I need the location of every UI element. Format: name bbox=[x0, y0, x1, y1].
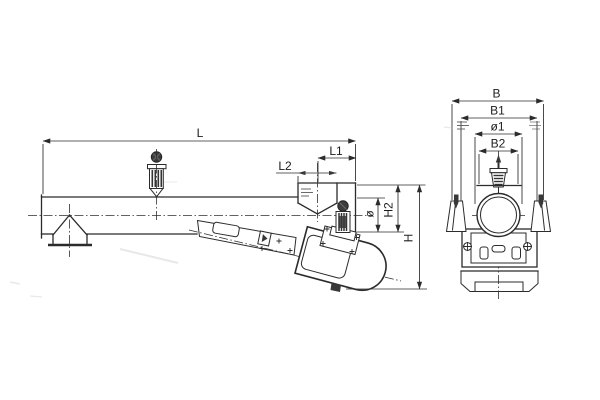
dim-label-l: L bbox=[197, 126, 204, 140]
end-suspension-hanger bbox=[490, 155, 507, 195]
base bbox=[461, 271, 538, 292]
dim-label-phi: ø bbox=[363, 210, 377, 218]
dim-label-phi1: ø1 bbox=[490, 120, 504, 134]
suspension-hanger bbox=[148, 149, 178, 221]
dim-label-l2: L2 bbox=[278, 159, 292, 173]
dim-label-b2: B2 bbox=[491, 137, 506, 151]
side-bracket-right bbox=[531, 195, 551, 232]
side-bracket-left bbox=[447, 195, 467, 232]
end-view: B B1 ø1 B2 bbox=[447, 87, 551, 300]
dim-label-h2: H2 bbox=[382, 202, 396, 218]
dim-label-h: H bbox=[402, 234, 416, 243]
dim-label-l1: L1 bbox=[329, 144, 343, 158]
side-view: L L1 L2 ø H2 H bbox=[28, 126, 427, 296]
dim-label-b: B bbox=[492, 87, 500, 101]
drawing-svg: L L1 L2 ø H2 H bbox=[0, 0, 600, 400]
technical-drawing: L L1 L2 ø H2 H bbox=[0, 0, 600, 400]
tube-cross-section bbox=[477, 194, 520, 237]
discharge-outlet bbox=[48, 204, 92, 257]
exciter-unit bbox=[330, 201, 356, 241]
dim-label-b1: B1 bbox=[490, 104, 505, 118]
clamp-block bbox=[258, 231, 271, 246]
